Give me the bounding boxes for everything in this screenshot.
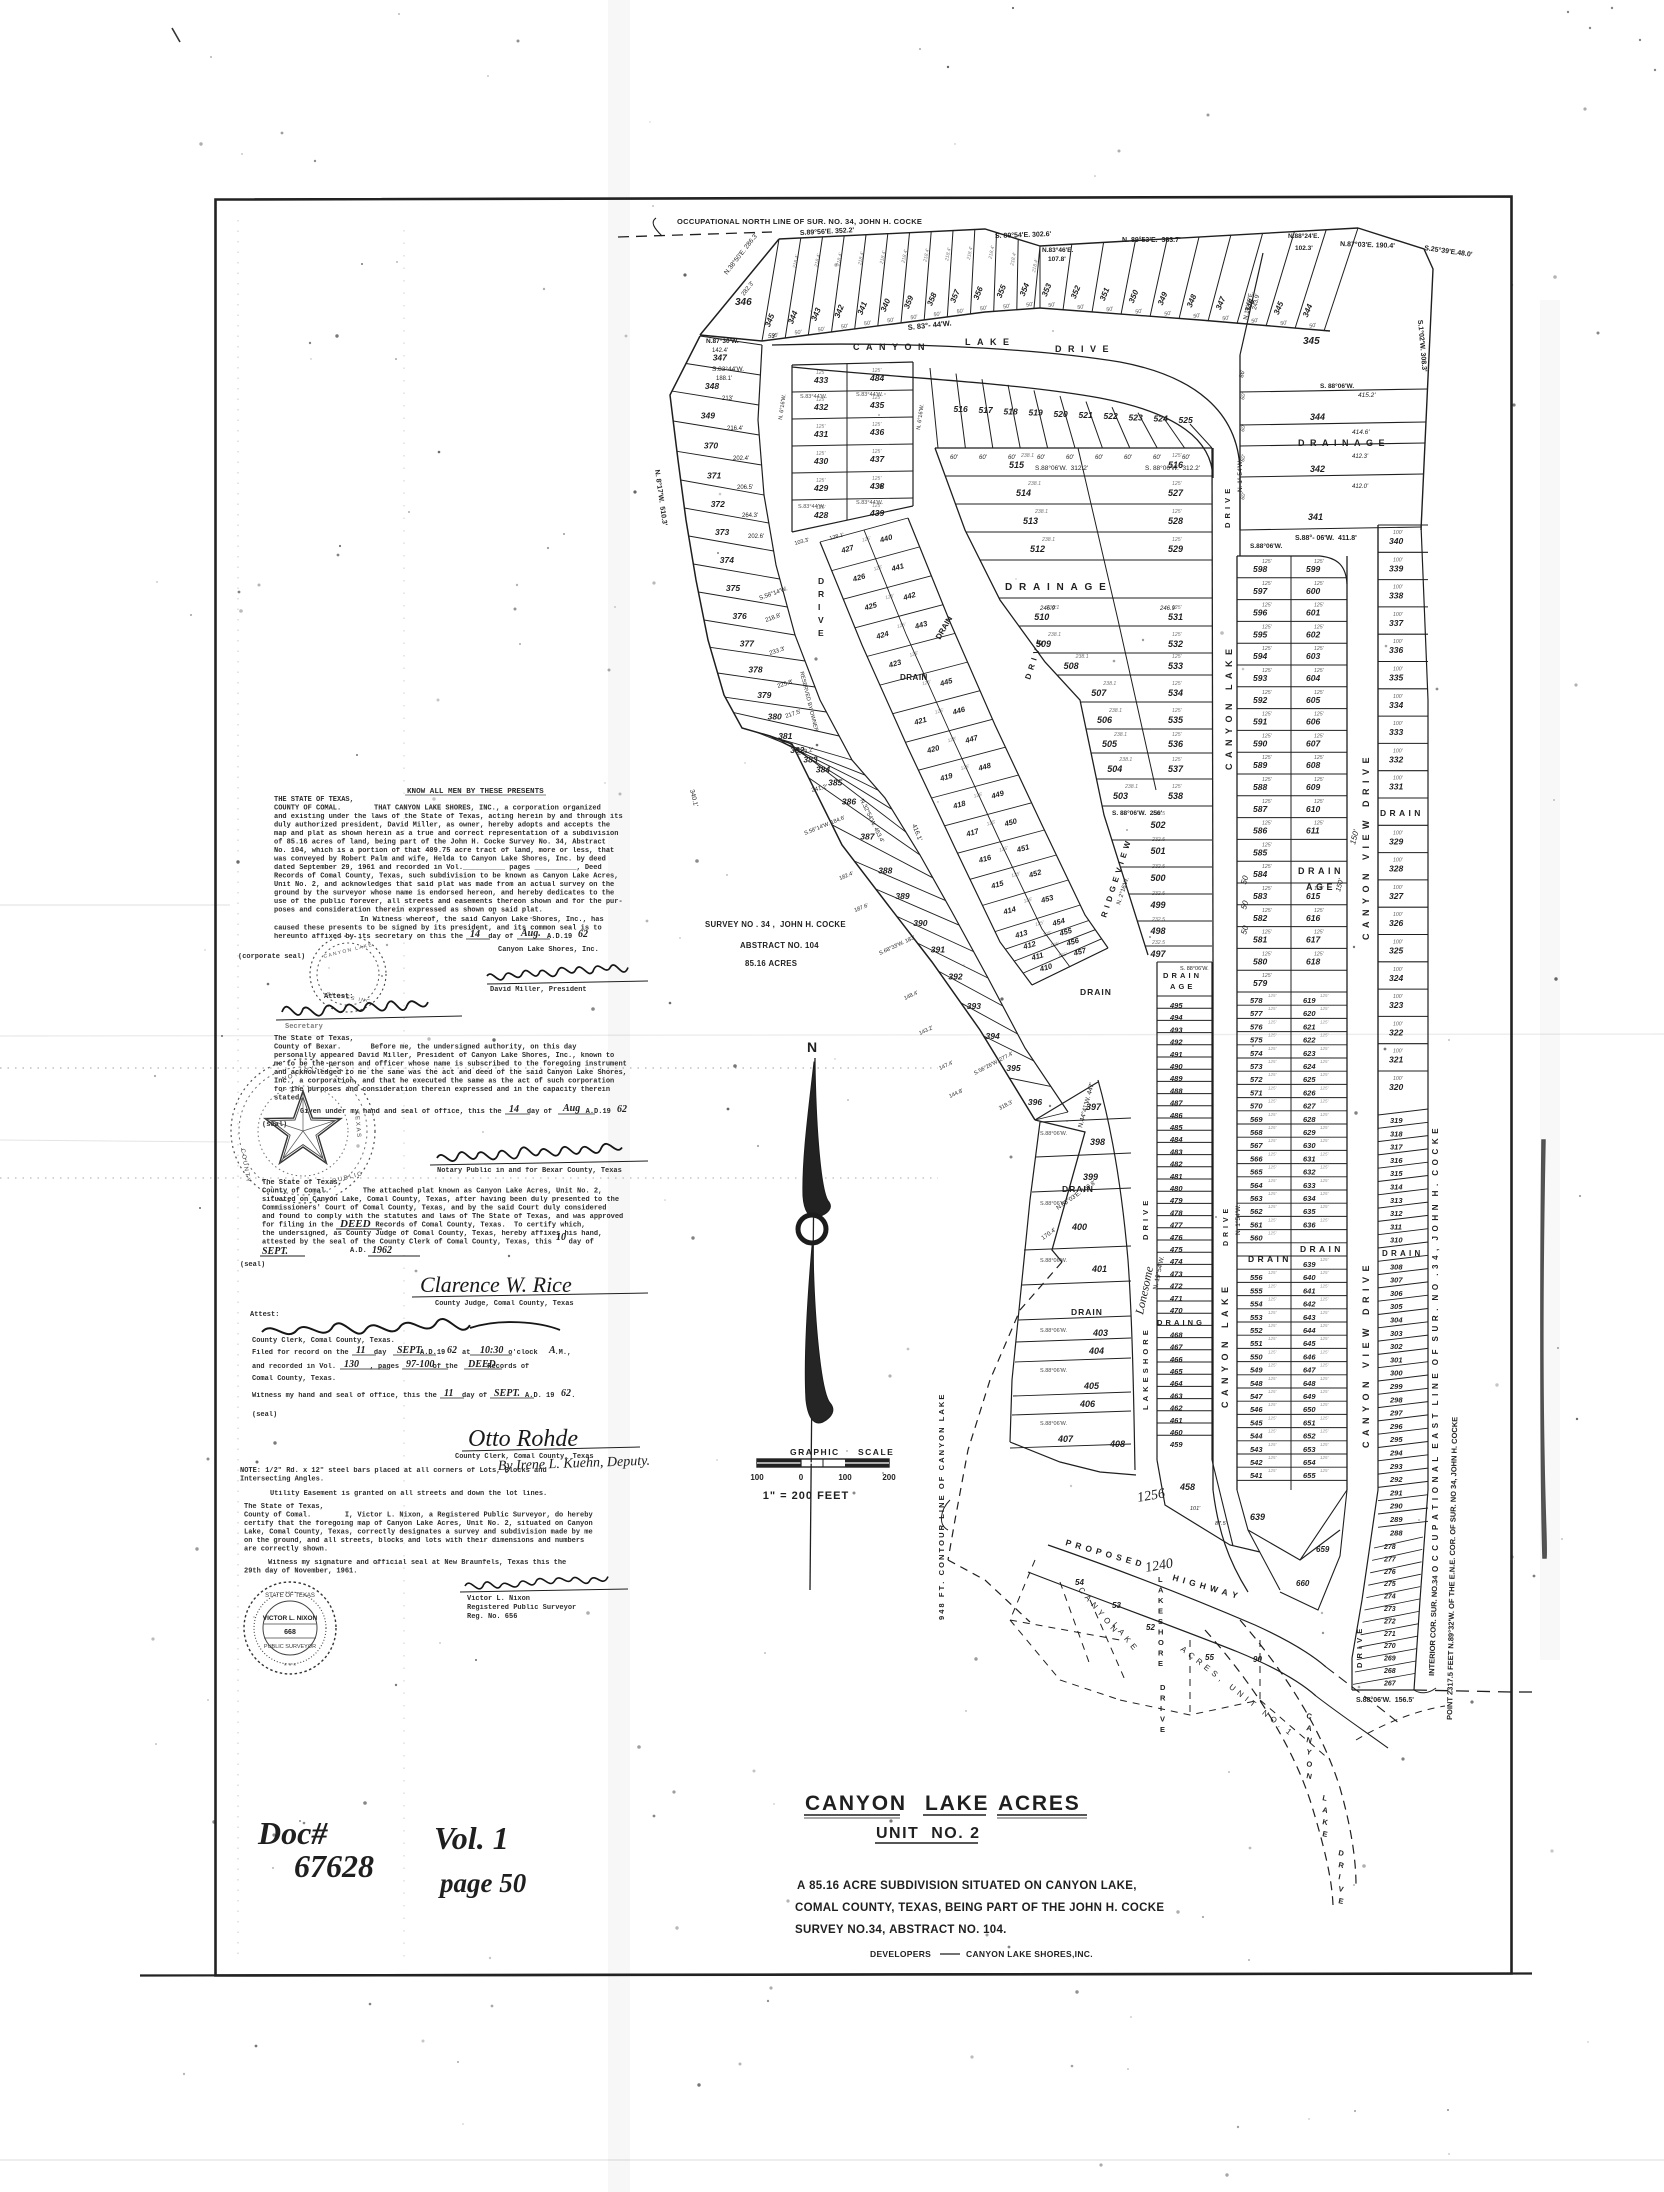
svg-text:329: 329 [1389, 836, 1403, 846]
svg-text:532: 532 [1168, 639, 1183, 649]
svg-text:454: 454 [1050, 916, 1066, 929]
svg-text:307: 307 [1390, 1276, 1403, 1285]
svg-text:125': 125' [1314, 908, 1325, 914]
svg-text:N. 89°53'E. 383.7': N. 89°53'E. 383.7' [1122, 236, 1181, 244]
svg-text:375: 375 [726, 583, 740, 593]
svg-text:125': 125' [1262, 668, 1273, 674]
svg-text:125': 125' [1320, 1389, 1329, 1394]
svg-text:125': 125' [1262, 930, 1273, 936]
svg-text:certify that the foregoing map: certify that the foregoing map of Canyon… [244, 1520, 593, 1528]
svg-text:90: 90 [1253, 1655, 1262, 1664]
svg-text:438: 438 [869, 481, 884, 491]
svg-text:350: 350 [1127, 288, 1141, 304]
svg-text:100': 100' [1393, 912, 1404, 918]
svg-text:584: 584 [1253, 869, 1267, 879]
svg-text:125': 125' [1268, 1415, 1277, 1420]
svg-text:324: 324 [1389, 973, 1403, 983]
svg-text:274: 274 [1383, 1594, 1396, 1601]
svg-text:D R I V E: D R I V E [1055, 344, 1111, 354]
svg-text:358: 358 [925, 291, 939, 307]
svg-text:L: L [1158, 1575, 1163, 1584]
svg-text:538: 538 [1168, 791, 1183, 801]
svg-text:125': 125' [1268, 1455, 1277, 1460]
svg-text:N.83°46'E.: N.83°46'E. [1042, 246, 1073, 254]
svg-text:Y: Y [1306, 1747, 1313, 1757]
svg-text:50': 50' [1077, 304, 1086, 311]
svg-text:Clarence W. Rice: Clarence W. Rice [420, 1272, 572, 1297]
svg-text:125': 125' [1320, 1455, 1329, 1460]
svg-text:148.4': 148.4' [903, 990, 919, 1002]
svg-text:316: 316 [1390, 1156, 1403, 1165]
svg-text:620: 620 [1303, 1009, 1316, 1018]
svg-text:125': 125' [816, 478, 826, 484]
svg-text:DRAIN: DRAIN [900, 673, 928, 682]
svg-text:L A K E: L A K E [965, 337, 1011, 347]
svg-text:125': 125' [1320, 1415, 1329, 1420]
svg-text:660: 660 [1296, 1579, 1310, 1588]
svg-text:238.1: 238.1 [1124, 784, 1138, 790]
svg-text:300: 300 [1390, 1369, 1403, 1378]
svg-text:575: 575 [1250, 1036, 1263, 1045]
svg-text:238.1: 238.1 [1075, 654, 1089, 660]
svg-text:238.1: 238.1 [1118, 757, 1132, 763]
svg-text:125': 125' [1320, 1323, 1329, 1328]
svg-text:125': 125' [1320, 1138, 1329, 1143]
svg-text:107.8': 107.8' [1048, 256, 1066, 263]
svg-text:125': 125' [1320, 1217, 1329, 1222]
svg-text:D: D [1338, 1848, 1346, 1858]
svg-text:11: 11 [444, 1388, 453, 1399]
svg-text:289: 289 [1389, 1515, 1403, 1524]
svg-text:389: 389 [895, 891, 909, 901]
svg-text:100': 100' [1393, 776, 1404, 782]
svg-text:N: N [1306, 1735, 1313, 1745]
svg-text:631: 631 [1303, 1154, 1316, 1163]
svg-text:602: 602 [1306, 629, 1320, 639]
svg-text:373: 373 [715, 527, 729, 537]
svg-text:125': 125' [873, 564, 884, 573]
svg-text:233.3': 233.3' [769, 646, 786, 657]
svg-text:213': 213' [722, 396, 733, 402]
svg-text:653: 653 [1303, 1445, 1316, 1454]
svg-text:S: S [1158, 1617, 1163, 1626]
svg-text:400: 400 [1071, 1222, 1087, 1232]
svg-text:278: 278 [1383, 1544, 1396, 1551]
svg-text:125': 125' [1262, 690, 1273, 696]
svg-text:125': 125' [1320, 1402, 1329, 1407]
svg-text:125': 125' [1320, 1178, 1329, 1183]
svg-text:144.8': 144.8' [948, 1088, 964, 1100]
svg-text:V: V [1338, 1884, 1345, 1894]
svg-text:618: 618 [1306, 956, 1320, 966]
svg-text:416.1': 416.1' [910, 823, 923, 842]
svg-text:417: 417 [964, 826, 980, 839]
svg-text:421: 421 [912, 715, 927, 727]
svg-text:497: 497 [1149, 949, 1166, 959]
svg-text:55: 55 [1205, 1653, 1214, 1662]
svg-text:0: 0 [799, 1473, 804, 1482]
svg-text:238.1: 238.1 [1108, 708, 1122, 714]
svg-text:50': 50' [1280, 320, 1289, 327]
svg-text:125': 125' [1268, 1033, 1277, 1038]
svg-text:60': 60' [1095, 455, 1104, 461]
svg-text:424: 424 [874, 629, 890, 642]
svg-text:County of Bexar. Before: County of Bexar. Before me, the undersig… [274, 1044, 577, 1052]
svg-text:60': 60' [1124, 455, 1133, 461]
svg-text:and acknowledged to me the sam: and acknowledged to me the same was the … [274, 1069, 627, 1077]
svg-text:125': 125' [1268, 1204, 1277, 1209]
svg-text:502: 502 [1150, 820, 1165, 830]
svg-text:County Clerk, Comal County, Te: County Clerk, Comal County, Texas. [252, 1337, 395, 1345]
svg-text:(corporate seal): (corporate seal) [238, 953, 305, 961]
svg-text:125': 125' [1262, 755, 1273, 761]
svg-text:100: 100 [750, 1473, 764, 1482]
svg-text:125': 125' [1314, 799, 1325, 805]
svg-text:291: 291 [1389, 1488, 1403, 1497]
svg-text:654: 654 [1303, 1458, 1316, 1467]
svg-text:238.1: 238.1 [1027, 481, 1041, 487]
svg-text:513: 513 [1023, 516, 1038, 526]
svg-text:269: 269 [1383, 1656, 1396, 1663]
svg-text:396: 396 [1028, 1097, 1042, 1107]
svg-text:V: V [1160, 1715, 1165, 1724]
svg-text:571: 571 [1250, 1088, 1263, 1097]
svg-text:125': 125' [1314, 712, 1325, 718]
svg-text:510: 510 [1034, 612, 1049, 622]
svg-text:377: 377 [740, 638, 755, 648]
svg-text:345: 345 [763, 312, 777, 328]
svg-text:54: 54 [1075, 1578, 1084, 1587]
svg-text:456: 456 [1065, 935, 1081, 948]
svg-text:546: 546 [1250, 1405, 1263, 1414]
svg-text:238.1: 238.1 [1034, 509, 1048, 515]
svg-text:582: 582 [1253, 913, 1267, 923]
svg-text:125': 125' [1320, 1165, 1329, 1170]
svg-text:E: E [818, 628, 824, 638]
svg-text:577: 577 [1250, 1009, 1263, 1018]
svg-text:29th day of November, 1961.: 29th day of November, 1961. [244, 1568, 357, 1576]
svg-text:125': 125' [1320, 1204, 1329, 1209]
svg-text:N. 1° 54'W.: N. 1° 54'W. [1236, 459, 1244, 492]
svg-text:page 50: page 50 [438, 1868, 527, 1898]
svg-text:420: 420 [925, 743, 941, 756]
svg-text:Records of Comal County, Texas: Records of Comal County, Texas, such sub… [274, 873, 618, 881]
svg-text:578: 578 [1250, 996, 1263, 1005]
svg-text:125': 125' [1314, 733, 1325, 739]
svg-text:125': 125' [1320, 1112, 1329, 1117]
svg-text:659: 659 [1316, 1545, 1330, 1554]
svg-text:359: 359 [902, 294, 916, 310]
svg-text:100': 100' [1393, 1049, 1404, 1055]
svg-text:125': 125' [1320, 1349, 1329, 1354]
svg-text:436: 436 [869, 427, 884, 437]
svg-text:440: 440 [878, 532, 894, 545]
svg-text:594: 594 [1253, 651, 1267, 661]
svg-text:E: E [1158, 1659, 1163, 1668]
svg-text:60': 60' [1153, 455, 1162, 461]
svg-text:423: 423 [887, 657, 903, 670]
svg-text:C: C [1306, 1711, 1314, 1721]
svg-text:553: 553 [1250, 1313, 1263, 1322]
svg-text:125': 125' [1262, 603, 1273, 609]
svg-text:232.5: 232.5 [1151, 864, 1165, 870]
svg-text:564: 564 [1250, 1181, 1263, 1190]
svg-text:636: 636 [1303, 1220, 1316, 1229]
svg-text:346: 346 [735, 297, 752, 308]
svg-text:668: 668 [284, 1629, 296, 1636]
svg-text:238.1: 238.1 [1047, 632, 1061, 638]
svg-text:GRAPHIC: GRAPHIC [790, 1447, 840, 1457]
svg-text:294: 294 [1389, 1449, 1403, 1458]
svg-text:125': 125' [1314, 603, 1325, 609]
svg-text:567: 567 [1250, 1141, 1263, 1150]
svg-text:125': 125' [1172, 509, 1183, 515]
svg-text:331: 331 [1389, 782, 1403, 792]
svg-text:533: 533 [1168, 661, 1183, 671]
svg-text:268: 268 [1383, 1668, 1396, 1675]
svg-text:60': 60' [1037, 455, 1046, 461]
svg-text:349: 349 [701, 410, 715, 420]
svg-text:512: 512 [1030, 544, 1045, 554]
svg-text:50': 50' [1309, 322, 1318, 329]
svg-text:125': 125' [1320, 1336, 1329, 1341]
svg-text:390: 390 [913, 918, 927, 928]
svg-text:555: 555 [1250, 1286, 1263, 1295]
svg-text:565: 565 [1250, 1168, 1263, 1177]
svg-text:I: I [818, 602, 820, 612]
svg-text:182.4': 182.4' [839, 871, 855, 882]
svg-text:273: 273 [1383, 1606, 1396, 1613]
svg-text:14: 14 [509, 1104, 519, 1115]
svg-text:Witness my hand and seal of of: Witness my hand and seal of office, this… [252, 1392, 575, 1400]
svg-text:439: 439 [869, 508, 884, 518]
svg-text:125': 125' [1262, 951, 1273, 957]
svg-text:Commissioners' Court of Comal: Commissioners' Court of Comal County, Te… [262, 1205, 606, 1213]
svg-text:S. 89°54'E. 302.6': S. 89°54'E. 302.6' [995, 230, 1052, 240]
svg-text:* * *: * * * [284, 1663, 296, 1670]
svg-text:150': 150' [1335, 877, 1345, 892]
svg-text:62: 62 [561, 1388, 571, 1399]
svg-text:S.83°44'W.: S.83°44'W. [712, 365, 744, 373]
svg-text:53: 53 [1112, 1601, 1121, 1610]
svg-text:130: 130 [344, 1359, 359, 1370]
svg-text:50': 50' [1193, 313, 1202, 320]
svg-text:499: 499 [1149, 900, 1165, 910]
svg-text:232.5: 232.5 [1151, 891, 1165, 897]
svg-text:218.4': 218.4' [1009, 251, 1018, 267]
svg-text:639: 639 [1250, 1512, 1265, 1522]
svg-text:use of the public forever, all: use of the public forever, all streets a… [274, 898, 623, 906]
svg-text:V: V [818, 615, 824, 625]
svg-text:611: 611 [1306, 826, 1320, 836]
svg-text:507: 507 [1091, 688, 1107, 698]
svg-text:429: 429 [813, 483, 828, 493]
svg-text:60': 60' [1066, 455, 1075, 461]
svg-text:313: 313 [1390, 1196, 1403, 1205]
svg-text:560: 560 [1250, 1234, 1263, 1243]
svg-text:328: 328 [1389, 864, 1403, 874]
svg-text:125': 125' [1314, 951, 1325, 957]
svg-text:DEVELOPERS: DEVELOPERS [870, 1949, 931, 1959]
svg-text:150': 150' [1348, 828, 1361, 845]
svg-text:125': 125' [1172, 784, 1183, 790]
svg-text:INTERIOR COR. SUR. NO.34: INTERIOR COR. SUR. NO.34 [1427, 1575, 1440, 1677]
svg-text:426: 426 [851, 571, 867, 584]
svg-text:10: 10 [556, 1232, 566, 1243]
svg-text:C O U N T Y: C O U N T Y [239, 1148, 251, 1182]
svg-text:125': 125' [1268, 1178, 1277, 1183]
svg-text:583: 583 [1253, 891, 1267, 901]
svg-text:N.88°24'E.: N.88°24'E. [1288, 232, 1319, 240]
svg-text:A 85.16 ACRE SUBDIVISION SITUA: A 85.16 ACRE SUBDIVISION SITUATED ON CAN… [797, 1880, 1137, 1892]
svg-text:125': 125' [896, 621, 907, 630]
svg-text:125': 125' [1320, 1151, 1329, 1156]
svg-text:60': 60' [1182, 455, 1191, 461]
svg-text:605: 605 [1306, 695, 1320, 705]
svg-text:125': 125' [885, 593, 896, 602]
svg-text:COMAL COUNTY, TEXAS, BEING PAR: COMAL COUNTY, TEXAS, BEING PART OF THE J… [795, 1902, 1164, 1914]
svg-text:125': 125' [1314, 777, 1325, 783]
svg-text:288: 288 [1389, 1528, 1403, 1537]
svg-text:450: 450 [1003, 816, 1019, 829]
svg-text:650: 650 [1303, 1405, 1316, 1414]
svg-text:125': 125' [1320, 1085, 1329, 1090]
svg-text:50: 50 [1239, 924, 1250, 935]
svg-text:60': 60' [979, 455, 988, 461]
svg-text:125': 125' [1268, 1442, 1277, 1447]
svg-text:125': 125' [1320, 1046, 1329, 1051]
svg-text:H I G H W A Y: H I G H W A Y [1171, 1572, 1239, 1600]
svg-text:62: 62 [578, 929, 588, 940]
svg-text:125': 125' [1268, 1363, 1277, 1368]
svg-text:306: 306 [1390, 1289, 1403, 1298]
svg-text:125': 125' [1268, 1099, 1277, 1104]
svg-text:292: 292 [1389, 1475, 1403, 1484]
svg-text:372: 372 [711, 499, 725, 509]
svg-text:430: 430 [813, 456, 828, 466]
svg-text:Registered Public Surveyor: Registered Public Surveyor [467, 1604, 576, 1612]
svg-text:125': 125' [1023, 896, 1034, 905]
svg-text:341: 341 [1308, 512, 1323, 522]
svg-text:525: 525 [1179, 415, 1193, 425]
svg-text:K: K [1158, 1596, 1164, 1605]
svg-text:SCALE: SCALE [858, 1447, 894, 1457]
svg-text:(seal): (seal) [252, 1411, 277, 1419]
svg-text:345: 345 [1272, 300, 1286, 316]
svg-text:443: 443 [913, 619, 929, 632]
svg-text:218.8': 218.8' [765, 613, 782, 624]
svg-text:poses and consideration therei: poses and consideration therein expresse… [274, 907, 543, 915]
svg-text:232.5: 232.5 [1151, 940, 1165, 946]
svg-text:102.3': 102.3' [1295, 245, 1313, 252]
svg-text:410: 410 [1038, 961, 1054, 974]
svg-text:647: 647 [1303, 1366, 1316, 1375]
svg-text:302: 302 [1390, 1342, 1403, 1351]
svg-text:1962: 1962 [372, 1245, 392, 1256]
svg-text:A.D.: A.D. [308, 1247, 367, 1255]
svg-text:599: 599 [1306, 564, 1320, 574]
svg-text:N: N [807, 1039, 817, 1055]
svg-text:100': 100' [1393, 585, 1404, 591]
svg-text:C A N Y O N L A K E: C A N Y O N L A K E [1224, 647, 1234, 770]
svg-text:405: 405 [1083, 1381, 1100, 1391]
svg-text:627: 627 [1303, 1102, 1316, 1111]
svg-text:14: 14 [470, 929, 480, 940]
svg-text:The State of Texas,: The State of Texas, [262, 1179, 342, 1187]
svg-text:529: 529 [1168, 544, 1183, 554]
svg-text:125': 125' [1320, 1191, 1329, 1196]
svg-text:290: 290 [1389, 1502, 1403, 1511]
svg-text:218.4': 218.4' [900, 248, 909, 264]
svg-text:SURVEY NO . 34 , JOHN H. COCK: SURVEY NO . 34 , JOHN H. COCKE [705, 920, 846, 929]
svg-text:437: 437 [869, 454, 885, 464]
svg-text:535: 535 [1168, 715, 1184, 725]
svg-text:374: 374 [720, 555, 734, 565]
svg-text:N.87°03'E. 190.4': N.87°03'E. 190.4' [1340, 240, 1395, 250]
svg-text:531: 531 [1168, 612, 1183, 622]
svg-text:125': 125' [1268, 1217, 1277, 1222]
svg-text:218.4': 218.4' [813, 252, 822, 268]
svg-text:628: 628 [1303, 1115, 1316, 1124]
svg-text:543: 543 [1250, 1445, 1263, 1454]
svg-text:547: 547 [1250, 1392, 1263, 1401]
svg-text:101': 101' [1190, 1506, 1201, 1512]
svg-text:the undersigned, as County Jud: the undersigned, as County Judge of Coma… [262, 1230, 602, 1238]
svg-text:are correctly shown.: are correctly shown. [244, 1546, 328, 1554]
svg-text:125': 125' [1262, 646, 1273, 652]
svg-text:338: 338 [1389, 591, 1403, 601]
svg-text:401: 401 [1091, 1264, 1107, 1274]
svg-text:100': 100' [1393, 721, 1404, 727]
svg-text:327: 327 [1389, 891, 1404, 901]
svg-text:542: 542 [1250, 1458, 1263, 1467]
svg-text:301: 301 [1390, 1355, 1403, 1364]
svg-text:125': 125' [1268, 1151, 1277, 1156]
svg-text:100': 100' [1393, 940, 1404, 946]
svg-text:232.5: 232.5 [1151, 811, 1165, 817]
svg-text:125': 125' [1268, 1191, 1277, 1196]
svg-text:551: 551 [1250, 1339, 1263, 1348]
svg-text:Attest:: Attest: [324, 993, 353, 1001]
svg-text:100': 100' [1393, 612, 1404, 618]
svg-text:646: 646 [1303, 1352, 1316, 1361]
svg-text:for filing in the Rec: for filing in the Records of Comal Count… [262, 1222, 585, 1230]
svg-text:POINT 2317.5 FEET N.89°32'W. O: POINT 2317.5 FEET N.89°32'W. OF THE E.N.… [1445, 1417, 1459, 1720]
svg-text:C A N Y O N: C A N Y O N [853, 342, 927, 352]
svg-text:648: 648 [1303, 1379, 1316, 1388]
svg-text:Secretary: Secretary [285, 1023, 324, 1031]
svg-text:Comal County, Texas.: Comal County, Texas. [252, 1375, 336, 1383]
svg-text:640: 640 [1303, 1273, 1316, 1282]
svg-text:125': 125' [1314, 755, 1325, 761]
svg-text:125': 125' [1268, 1019, 1277, 1024]
svg-text:459: 459 [1169, 1440, 1183, 1449]
svg-text:103.3': 103.3' [794, 537, 810, 547]
svg-text:125': 125' [1314, 668, 1325, 674]
svg-text:Lake, Comal County, Texas, cor: Lake, Comal County, Texas, correctly des… [244, 1529, 593, 1537]
svg-text:315: 315 [1390, 1169, 1403, 1178]
svg-text:125': 125' [1268, 1006, 1277, 1011]
svg-text:Reg. No. 656: Reg. No. 656 [467, 1613, 517, 1621]
svg-text:379: 379 [757, 690, 771, 700]
svg-text:SEPT.: SEPT. [262, 1246, 288, 1257]
svg-text:484: 484 [869, 373, 884, 383]
svg-text:317: 317 [1390, 1143, 1403, 1152]
svg-text:433: 433 [813, 375, 828, 385]
svg-text:125': 125' [1320, 1006, 1329, 1011]
svg-text:202.4': 202.4' [733, 456, 749, 462]
svg-text:588: 588 [1253, 782, 1267, 792]
